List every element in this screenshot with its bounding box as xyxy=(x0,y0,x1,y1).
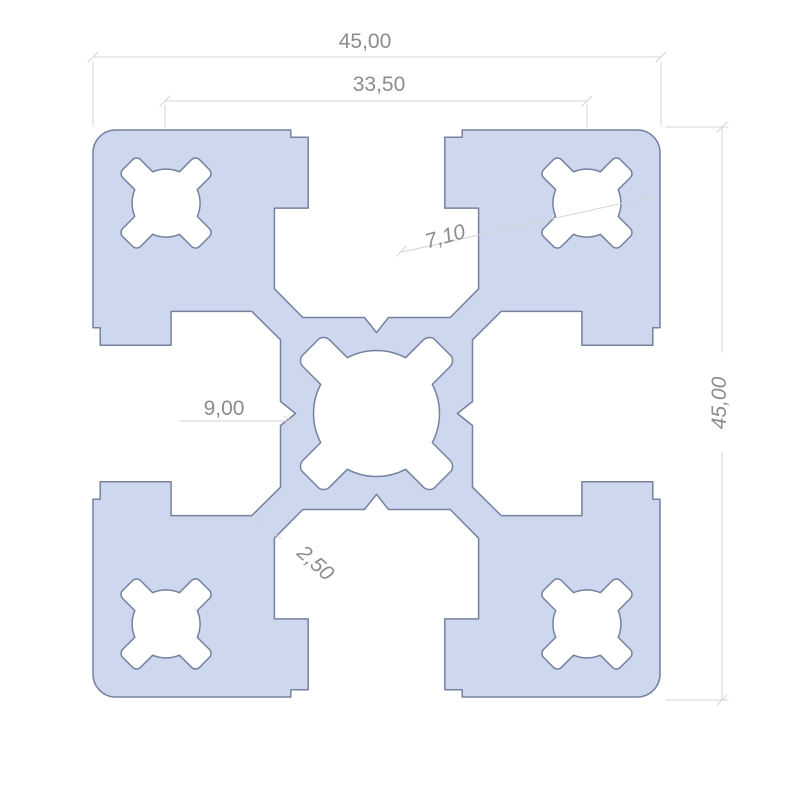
corner-cavity-1 xyxy=(542,158,632,248)
dim-label-overall-height: 45,00 xyxy=(708,376,731,429)
corner-cavity-2 xyxy=(542,579,632,669)
dim-label-core-detail: 9,00 xyxy=(204,397,245,420)
profile-cross-section xyxy=(93,130,660,697)
dim-label-cavity-spacing: 33,50 xyxy=(353,73,406,96)
center-bore-cavity xyxy=(300,337,452,489)
dim-label-web-thickness: 2,50 xyxy=(292,540,339,585)
drawing-canvas: 45,00 33,50 7,10 9,00 2,50 45,00 xyxy=(0,0,800,800)
corner-cavity-0 xyxy=(121,158,211,248)
dim-label-slot-detail: 7,10 xyxy=(422,220,468,253)
dim-label-overall-width: 45,00 xyxy=(339,30,392,53)
profile-drawing: 45,00 33,50 7,10 9,00 2,50 45,00 xyxy=(0,0,800,800)
corner-cavity-3 xyxy=(121,579,211,669)
